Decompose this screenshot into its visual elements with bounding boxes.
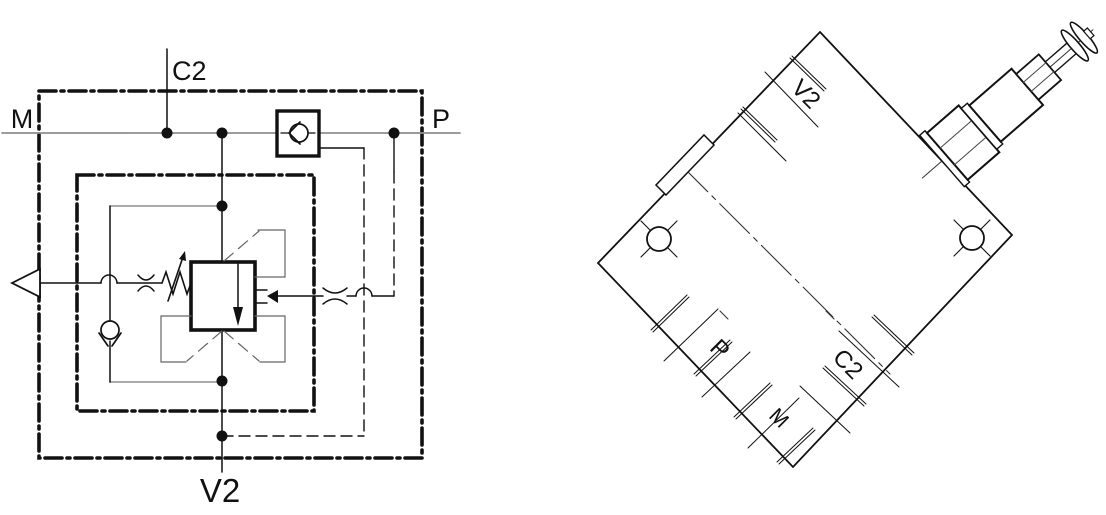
crossover-hop-left [101,275,117,283]
adjustment-arrowhead-icon [179,251,186,261]
technical-drawing-page: M C2 P V2 [0,0,1106,515]
drawing-canvas: M C2 P V2 [0,0,1106,515]
hydraulic-schematic: M C2 P V2 [2,49,460,509]
port-label-p: P [432,104,450,134]
vent-triangle-icon [12,269,40,297]
pilot-sense-line [255,288,394,304]
pilot-arrowhead-icon [267,290,278,303]
inline-check-valve-symbol [277,111,319,156]
port-label-v2: V2 [200,472,240,509]
adjustable-spring-symbol [162,251,191,301]
orifice-left-icon [138,275,154,280]
mounting-hole-right [954,220,990,256]
spring-chamber-drain-line [12,269,162,297]
valve-body-drawing: V2 P M C2 [598,4,1106,467]
port-label-m: M [11,104,34,134]
port-label-c2: C2 [172,56,207,86]
pressure-valve-square [191,262,255,330]
mounting-hole-left [641,221,677,257]
orifice-right-icon [323,288,347,293]
